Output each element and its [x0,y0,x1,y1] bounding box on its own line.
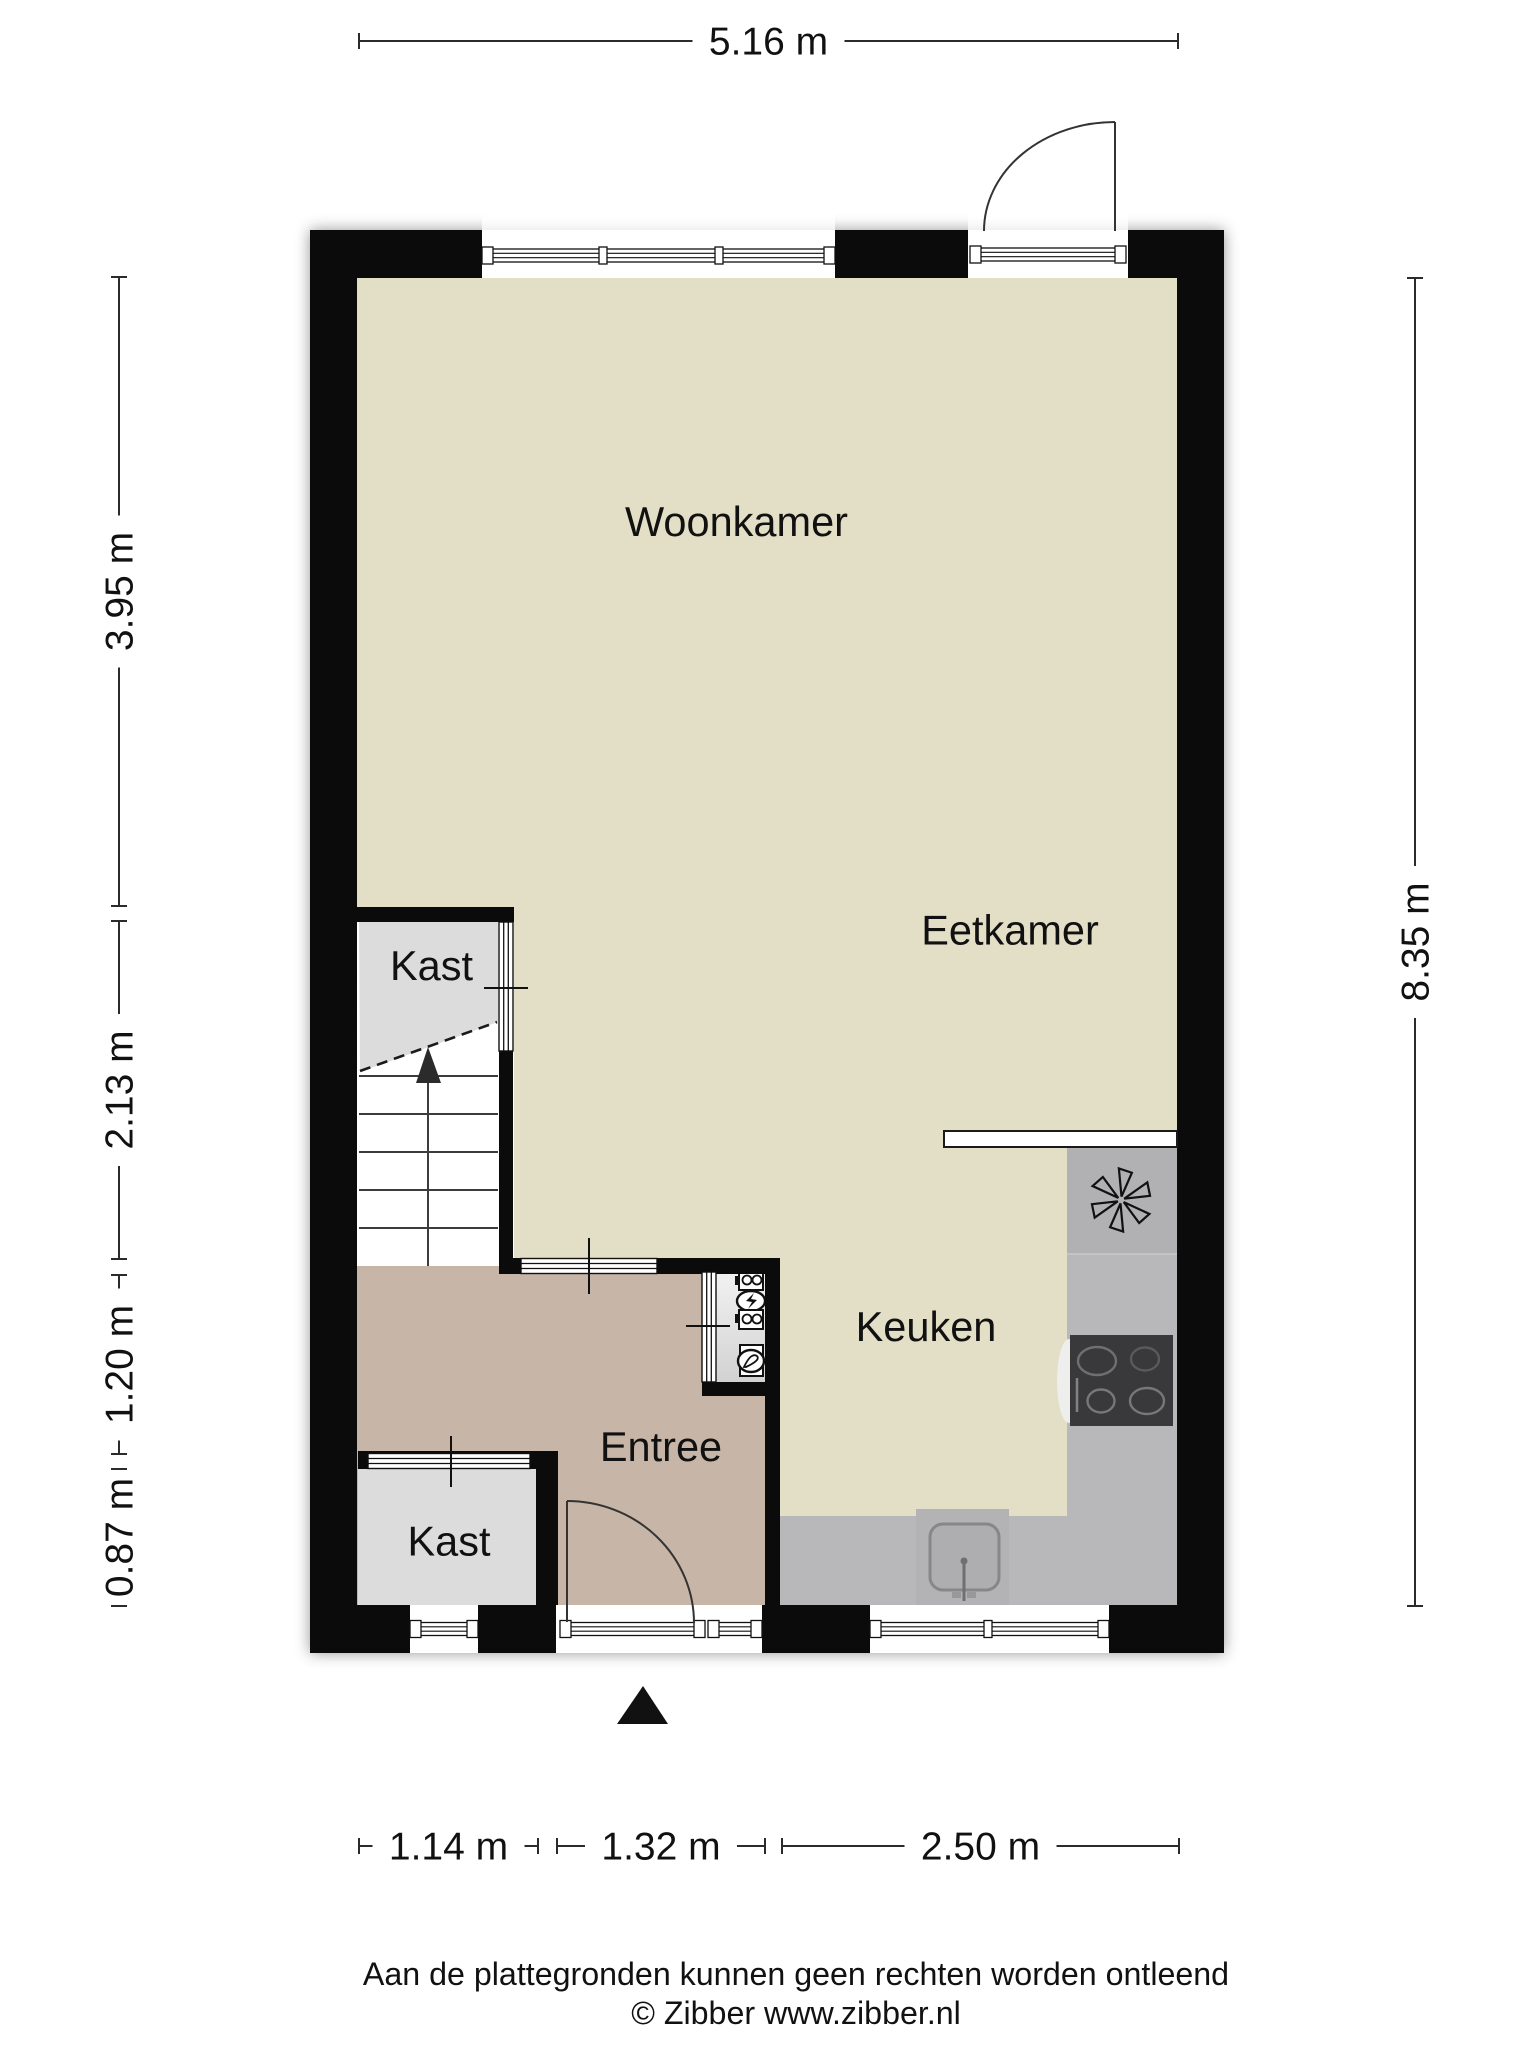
svg-text:8.35 m: 8.35 m [1395,882,1438,1001]
svg-text:Kast: Kast [390,942,474,989]
svg-text:1.14 m: 1.14 m [389,1826,508,1869]
svg-text:2.50 m: 2.50 m [921,1826,1040,1869]
svg-text:Aan de plattegronden kunnen ge: Aan de plattegronden kunnen geen rechten… [363,1956,1229,1992]
svg-text:1.32 m: 1.32 m [601,1826,720,1869]
svg-text:Kast: Kast [407,1518,491,1565]
svg-text:Woonkamer: Woonkamer [625,498,848,545]
svg-text:Entree: Entree [600,1423,722,1470]
svg-text:0.87 m: 0.87 m [99,1478,142,1597]
svg-text:1.20 m: 1.20 m [99,1305,142,1424]
svg-text:Eetkamer: Eetkamer [921,907,1099,954]
svg-text:2.13 m: 2.13 m [99,1030,142,1149]
svg-text:5.16 m: 5.16 m [709,21,828,64]
svg-text:© Zibber www.zibber.nl: © Zibber www.zibber.nl [631,1995,961,2031]
svg-text:3.95 m: 3.95 m [99,532,142,651]
svg-text:Keuken: Keuken [856,1303,997,1350]
